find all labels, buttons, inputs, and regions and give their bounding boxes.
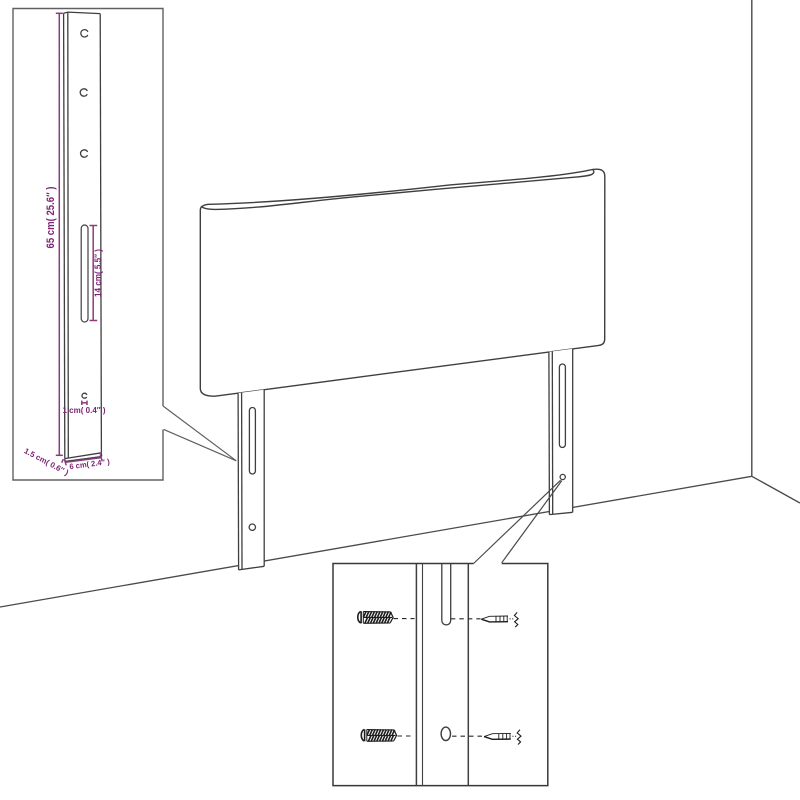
svg-text:14 cm( 5.5″ ): 14 cm( 5.5″ ) — [93, 249, 104, 297]
svg-text:1 cm( 0.4″ ): 1 cm( 0.4″ ) — [63, 406, 106, 415]
svg-text:65 cm( 25.6″ ): 65 cm( 25.6″ ) — [45, 186, 57, 248]
